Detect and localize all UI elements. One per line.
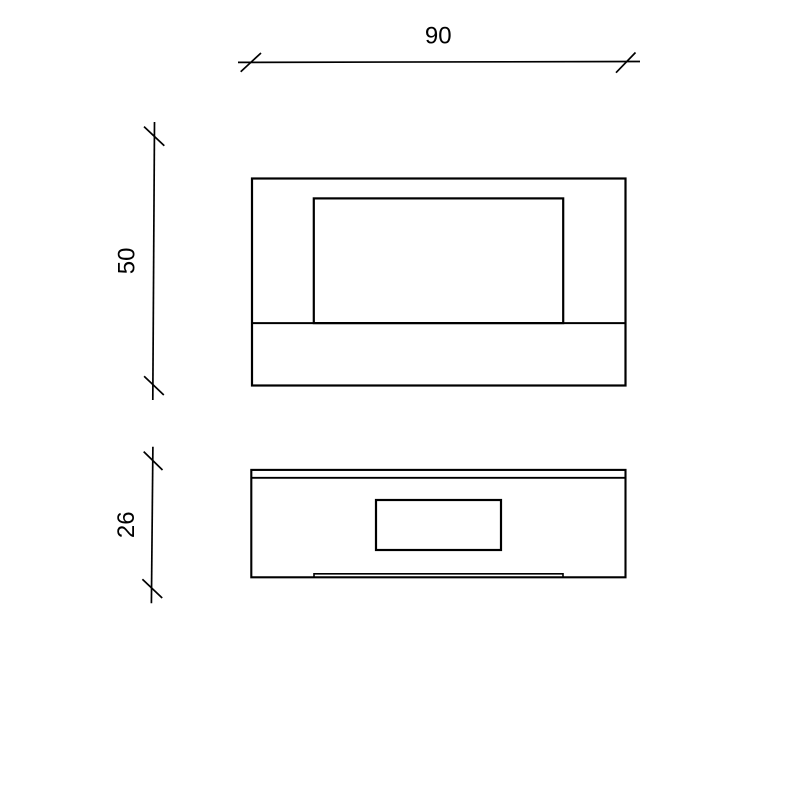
svg-text:50: 50 [113,248,140,275]
svg-text:90: 90 [425,23,452,50]
svg-text:26: 26 [113,511,140,538]
